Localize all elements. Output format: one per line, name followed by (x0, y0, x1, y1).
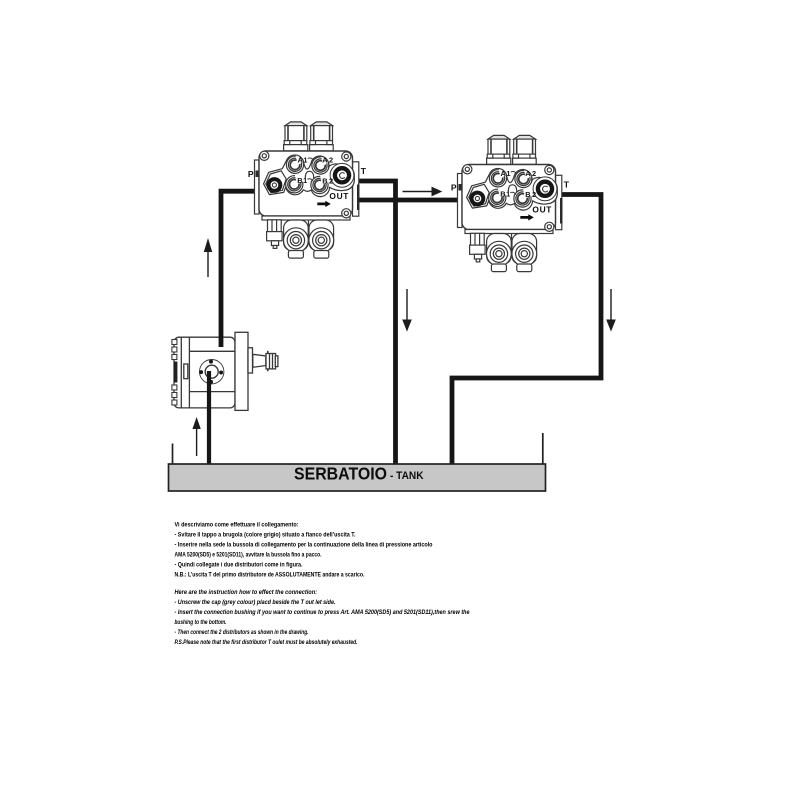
svg-text:SERBATOIO: SERBATOIO (294, 464, 387, 484)
svg-text:- Then connect the 2 distribut: - Then connect the 2 distributors as sho… (175, 629, 309, 636)
svg-text:P.S.Please note that the first: P.S.Please note that the first distribut… (175, 639, 358, 646)
svg-text:- Quindi collegate i due distr: - Quindi collegate i due distributori co… (175, 562, 303, 569)
svg-text:bushing to the bottom.: bushing to the bottom. (175, 619, 227, 626)
svg-text:- Inserire nella sede la busso: - Inserire nella sede la bussola di coll… (175, 542, 433, 549)
svg-text:- Insert the connection bushin: - Insert the connection bushing if you w… (175, 609, 470, 616)
svg-text:Vi descriviamo come effettuare: Vi descriviamo come effettuare il colleg… (175, 522, 299, 529)
svg-text:AMA 5200(SD5) e 5201(SD11), av: AMA 5200(SD5) e 5201(SD11), avvitare la … (175, 552, 322, 559)
svg-text:- TANK: - TANK (390, 470, 424, 482)
svg-text:- Svitare il tappo a brugola (: - Svitare il tappo a brugola (colore gri… (175, 532, 356, 539)
svg-text:- Unscrew the cap (grey colour: - Unscrew the cap (grey colour) placd be… (175, 599, 336, 606)
svg-text:N.B.: L’uscita T del primo dis: N.B.: L’uscita T del primo distributore … (175, 572, 365, 579)
svg-text:Here are the instruction how t: Here are the instruction how to effect t… (175, 589, 318, 596)
